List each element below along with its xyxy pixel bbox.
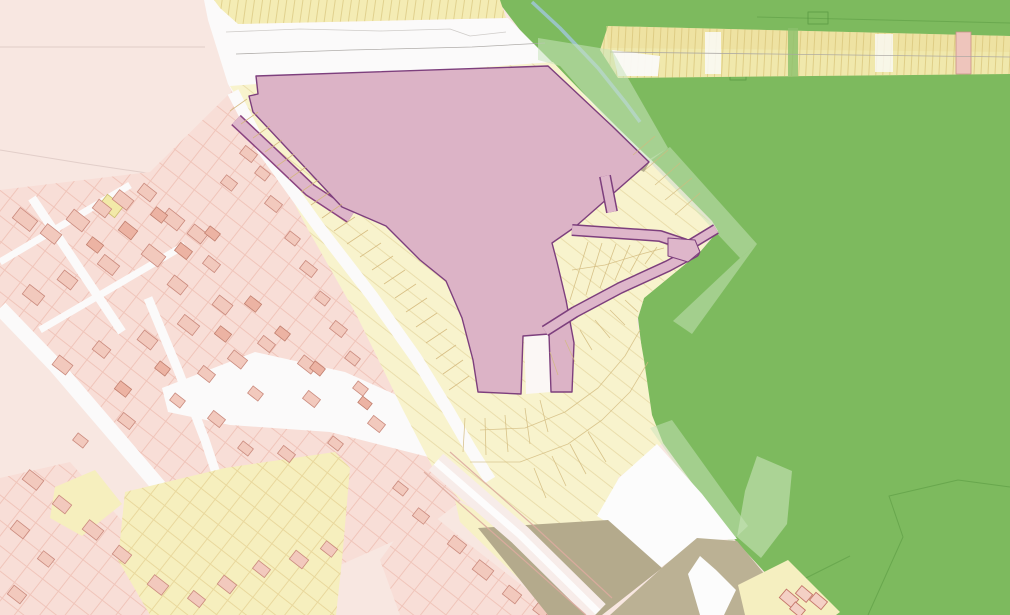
map-canvas[interactable] (0, 0, 1010, 615)
mauve-notch-white (524, 334, 551, 394)
allotment-pink-parcel (956, 32, 971, 74)
allotment-green-gap (788, 28, 798, 76)
map-viewport (0, 0, 1010, 615)
allotment-white-gap-3 (875, 34, 893, 72)
map-layers (0, 0, 1010, 615)
